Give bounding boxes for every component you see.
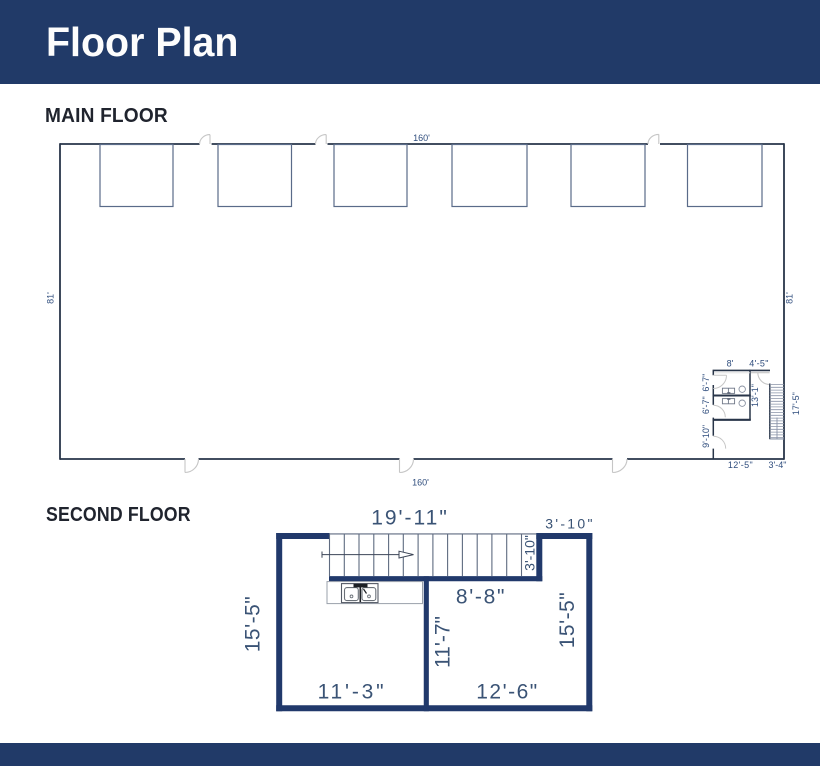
svg-text:13'-1": 13'-1" [750, 384, 760, 407]
svg-text:15'-5": 15'-5" [242, 596, 265, 653]
svg-text:3'-10": 3'-10" [545, 516, 594, 532]
svg-text:8': 8' [727, 359, 734, 369]
svg-text:81': 81' [46, 292, 56, 304]
svg-text:160': 160' [412, 478, 429, 488]
svg-text:12'-5": 12'-5" [728, 460, 753, 470]
svg-text:11'-7": 11'-7" [432, 616, 455, 668]
svg-text:3'-4": 3'-4" [769, 460, 787, 470]
svg-text:4'-5": 4'-5" [749, 359, 768, 369]
svg-text:3'-10": 3'-10" [522, 535, 538, 571]
svg-text:6'-7": 6'-7" [701, 396, 711, 414]
svg-text:6'-7": 6'-7" [701, 374, 711, 392]
svg-text:15'-5": 15'-5" [556, 592, 579, 649]
svg-text:11'-3": 11'-3" [318, 681, 387, 704]
svg-text:19'-11": 19'-11" [371, 507, 449, 530]
svg-text:160': 160' [413, 133, 430, 143]
svg-text:8'-8": 8'-8" [456, 586, 506, 609]
svg-text:81': 81' [785, 292, 795, 304]
svg-text:9'-10": 9'-10" [701, 425, 711, 448]
svg-text:17'-5": 17'-5" [791, 392, 801, 415]
svg-text:12'-6": 12'-6" [476, 681, 539, 704]
